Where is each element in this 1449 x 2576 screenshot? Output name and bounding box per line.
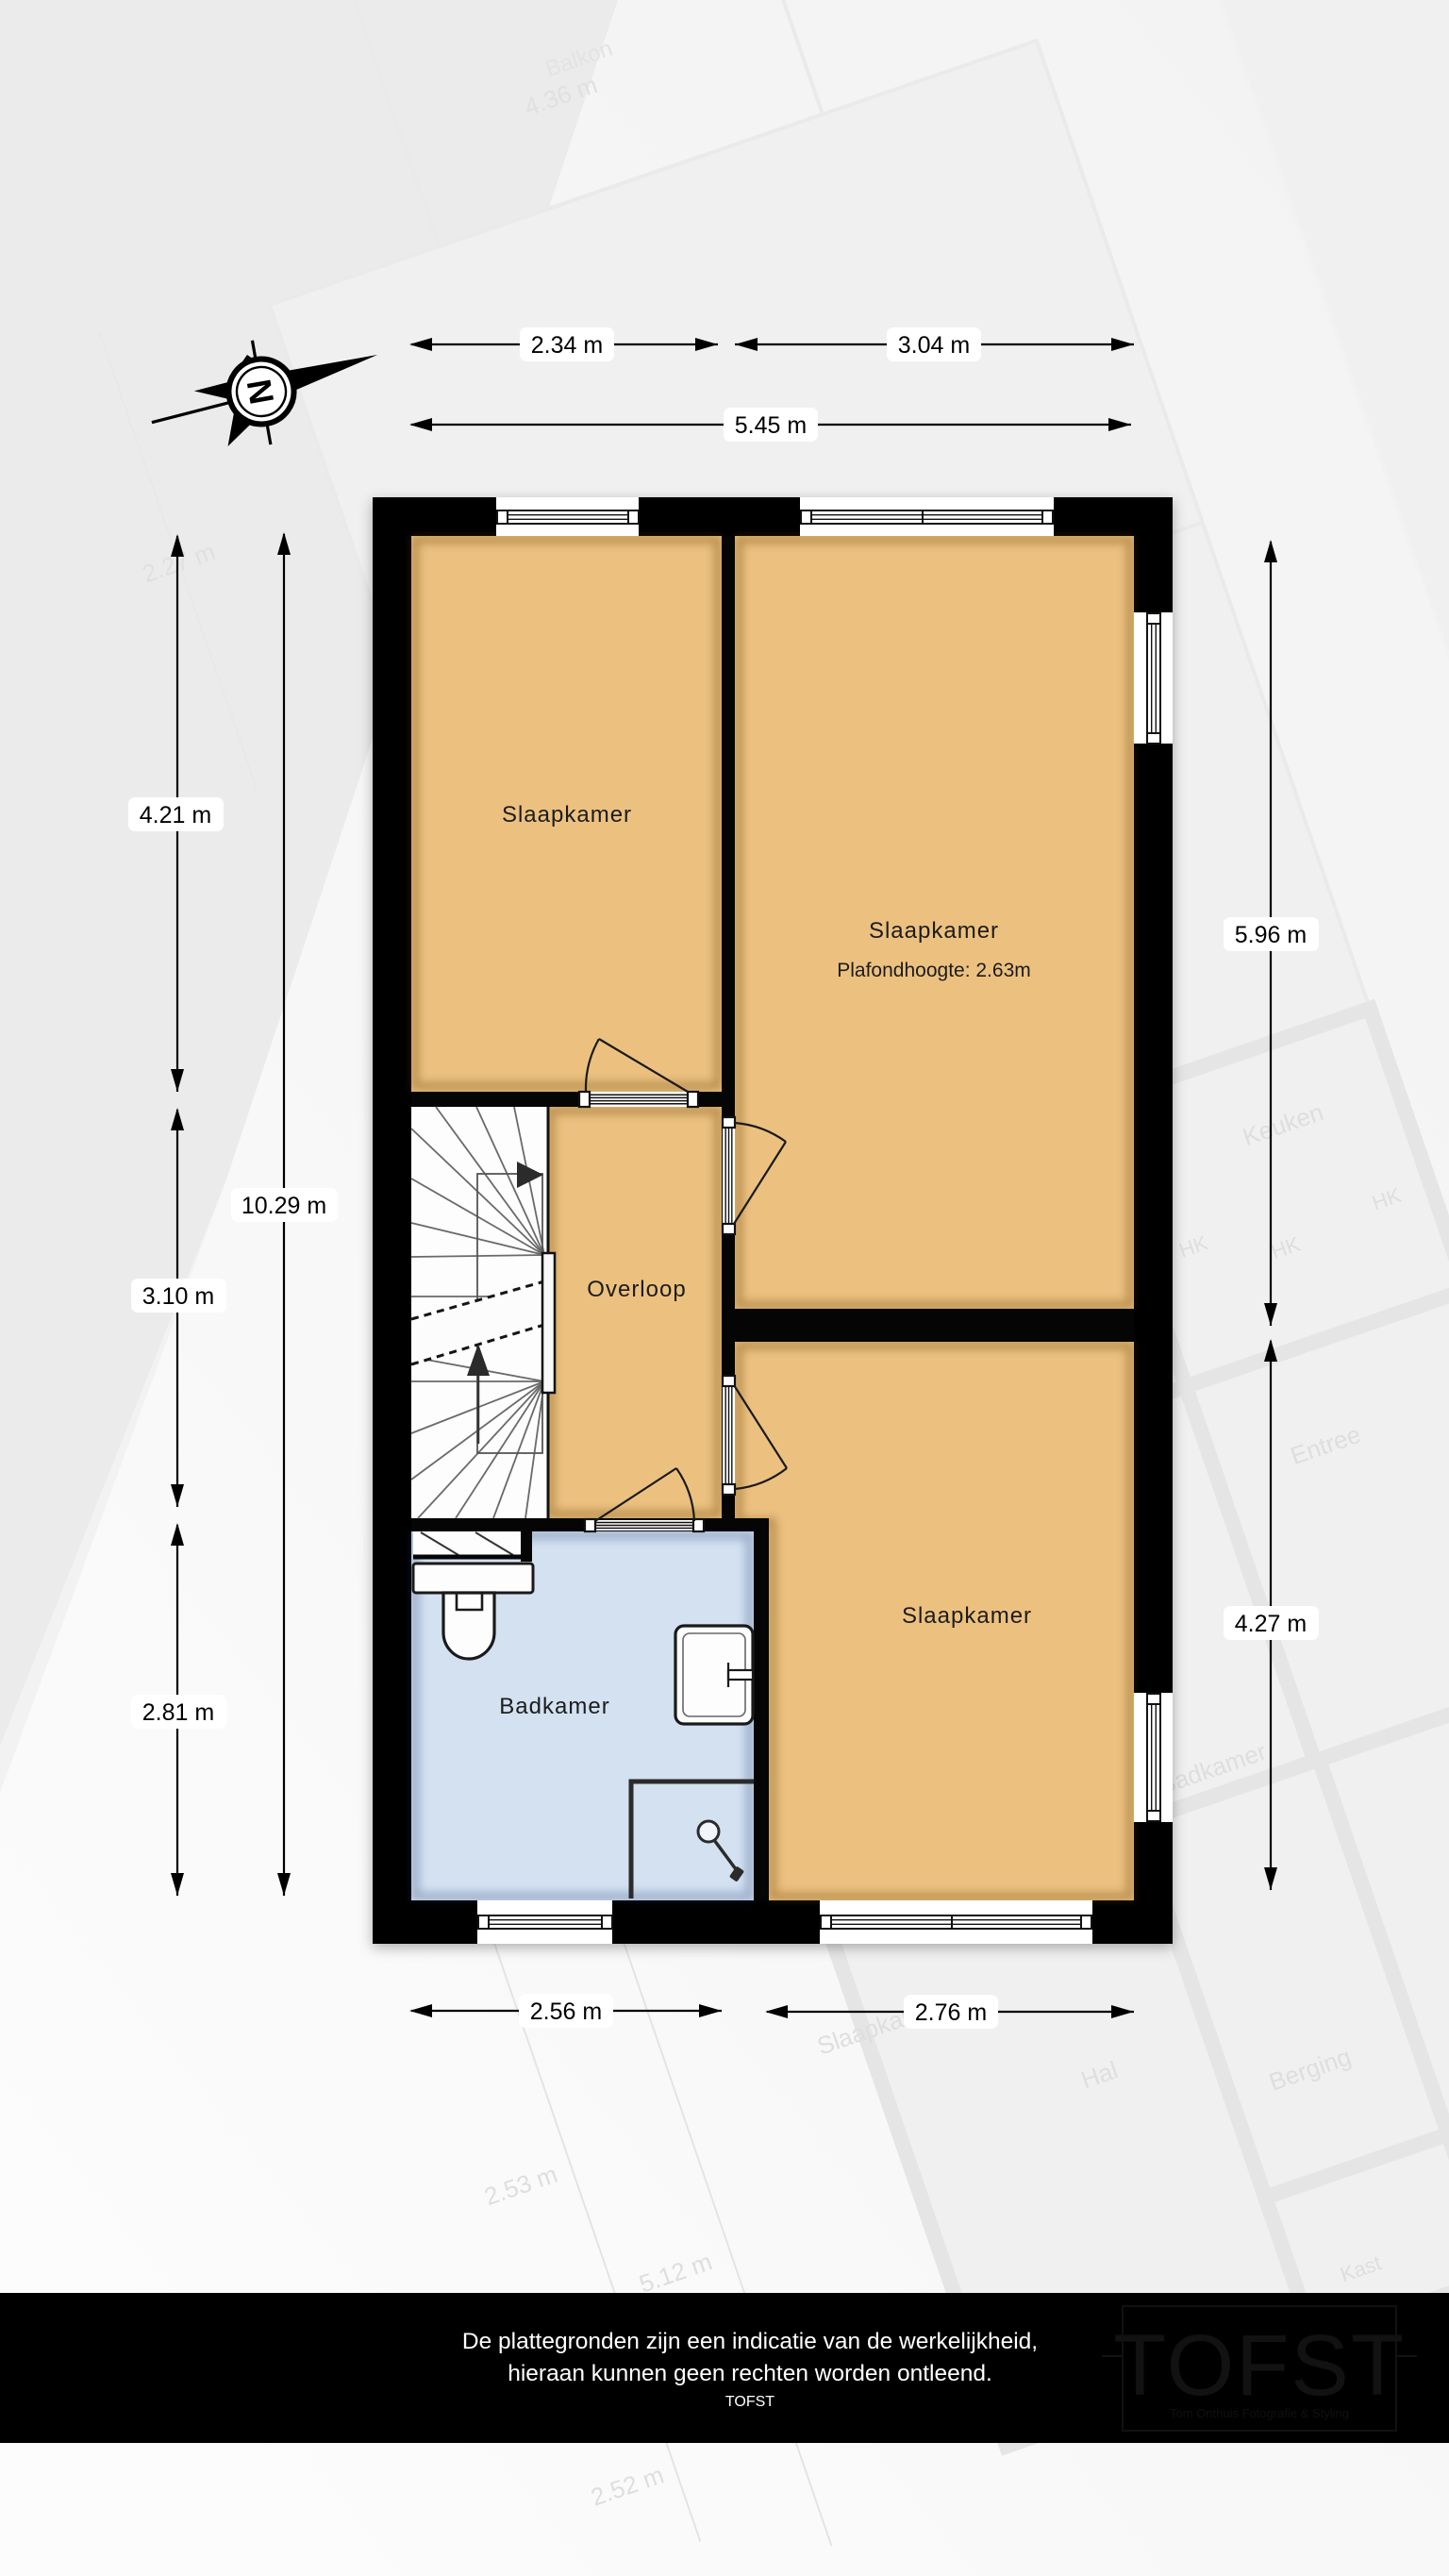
svg-text:TOFST: TOFST (1113, 2317, 1406, 2414)
svg-text:2.76 m: 2.76 m (915, 1999, 987, 2026)
svg-text:Tom Onthuis Fotografie & Styli: Tom Onthuis Fotografie & Styling (1170, 2406, 1349, 2420)
svg-text:10.29 m: 10.29 m (241, 1193, 326, 1219)
svg-text:3.10 m: 3.10 m (142, 1283, 214, 1310)
svg-text:TOFST: TOFST (725, 2394, 774, 2410)
svg-text:Overloop: Overloop (587, 1277, 686, 1302)
svg-text:Slaapkamer: Slaapkamer (869, 918, 999, 944)
svg-text:Slaapkamer: Slaapkamer (502, 802, 632, 828)
svg-text:4.27 m: 4.27 m (1235, 1611, 1307, 1637)
svg-text:2.56 m: 2.56 m (530, 1999, 602, 2025)
svg-text:5.45 m: 5.45 m (735, 412, 807, 439)
svg-text:4.21 m: 4.21 m (140, 802, 211, 828)
svg-text:2.34 m: 2.34 m (531, 332, 603, 359)
svg-text:Slaapkamer: Slaapkamer (902, 1603, 1032, 1629)
svg-text:hieraan kunnen geen rechten wo: hieraan kunnen geen rechten worden ontle… (508, 2361, 992, 2386)
svg-text:Badkamer: Badkamer (499, 1694, 609, 1719)
svg-text:3.04 m: 3.04 m (898, 332, 970, 359)
svg-text:Plafondhoogte: 2.63m: Plafondhoogte: 2.63m (837, 960, 1031, 981)
svg-text:5.96 m: 5.96 m (1235, 922, 1307, 948)
svg-text:De plattegronden zijn een indi: De plattegronden zijn een indicatie van … (462, 2329, 1038, 2354)
svg-text:2.81 m: 2.81 m (142, 1699, 214, 1726)
